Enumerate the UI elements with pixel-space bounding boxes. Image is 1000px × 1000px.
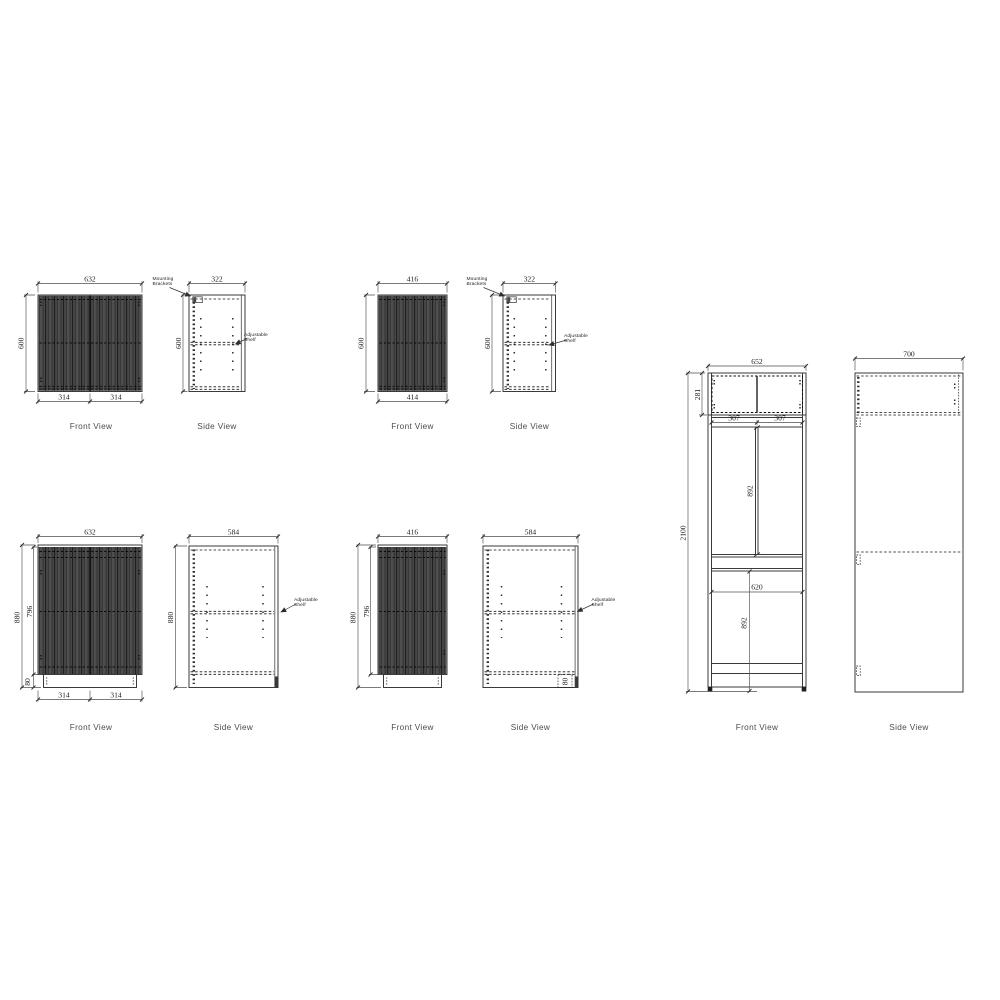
base-cabinet-416-side-view: 584 80	[481, 528, 594, 688]
dim-door-left: 314	[58, 393, 70, 402]
dim-width-top: 416	[407, 528, 419, 537]
dim-kick-height: 80	[23, 678, 32, 686]
dim-door-right: 314	[110, 393, 122, 402]
dim-door-left: 307	[728, 414, 740, 423]
wall-cabinet-632-side-view: 322 600	[170, 275, 248, 394]
dim-height-outer: 880	[349, 612, 358, 624]
dim-width-top: 632	[84, 275, 96, 284]
foot	[275, 677, 278, 688]
label-wall-416-front: Front View	[373, 422, 453, 431]
wall-cabinet-632-front-view: 632 600 314 314	[17, 275, 145, 404]
annotation-adjustable-shelf: Adjustable Shelf	[294, 598, 322, 609]
label-wall-632-front: Front View	[51, 422, 131, 431]
dim-upper-section: 892	[746, 485, 755, 497]
dim-lower-section: 892	[740, 617, 749, 629]
dim-height-left: 880	[166, 612, 175, 624]
dim-height-door: 796	[25, 606, 34, 618]
dim-door-right: 307	[774, 414, 786, 423]
dim-height-door: 796	[362, 606, 371, 618]
dim-depth-top: 322	[211, 275, 223, 284]
foot	[802, 687, 807, 692]
dim-width-top: 652	[751, 357, 763, 366]
dim-height-left: 600	[357, 337, 366, 349]
label-base-632-side: Side View	[194, 723, 274, 732]
annotation-adjustable-shelf: Adjustable Shelf	[592, 598, 620, 609]
dim-width-top: 416	[407, 275, 419, 284]
dim-door-right: 314	[110, 691, 122, 700]
base-cabinet-632-side-view: 584 880	[166, 528, 296, 690]
label-base-416-side: Side View	[491, 723, 571, 732]
kickboard	[384, 675, 442, 688]
dim-width-bottom: 414	[407, 393, 419, 402]
annotation-adjustable-shelf: Adjustable Shelf	[244, 333, 270, 344]
dim-height-outer: 880	[13, 612, 22, 624]
foot	[575, 677, 578, 688]
dim-depth-top: 584	[228, 528, 240, 537]
dim-height-left: 600	[483, 337, 492, 349]
dim-depth-top: 700	[903, 350, 915, 359]
dim-height-left: 2100	[679, 525, 688, 540]
label-wall-416-side: Side View	[490, 422, 570, 431]
label-base-416-front: Front View	[373, 723, 453, 732]
dim-depth-top: 322	[524, 275, 536, 284]
dim-width-top: 632	[84, 528, 96, 537]
dim-height-left: 600	[17, 337, 26, 349]
mounting-bracket-body	[507, 297, 510, 302]
tall-unit-front-view: 652 2100 281 307 307 892 620 892	[679, 357, 809, 694]
kickboard	[44, 675, 137, 688]
annotation-mounting-brackets: Mounting Brackets	[153, 277, 177, 288]
annotation-adjustable-shelf: Adjustable Shelf	[564, 334, 590, 345]
label-tall-side: Side View	[869, 723, 949, 732]
wall-cabinet-416-front-view: 416 600 414	[357, 275, 450, 404]
tall-unit-side-view: 700	[853, 350, 965, 693]
wall-cabinet-416-side-view: 322 600	[483, 275, 567, 394]
label-base-632-front: Front View	[51, 723, 131, 732]
annotation-mounting-brackets: Mounting Brackets	[467, 277, 491, 288]
cabinet-spec-sheet: 632 600 314 314 322 600 416	[0, 0, 1000, 1000]
mounting-bracket-body	[193, 297, 196, 302]
dim-kick-height: 80	[561, 678, 570, 686]
dim-top-section: 281	[693, 389, 702, 401]
foot	[708, 687, 713, 692]
fluted-door-panel	[379, 547, 447, 674]
technical-drawing-canvas: 632 600 314 314 322 600 416	[0, 0, 1000, 1000]
label-tall-front: Front View	[717, 723, 797, 732]
dim-door-left: 314	[58, 691, 70, 700]
dim-depth-top: 584	[525, 528, 537, 537]
label-wall-632-side: Side View	[177, 422, 257, 431]
mounting-brackets-arrow	[170, 288, 191, 297]
base-cabinet-632-front-view: 632 880 796 80 314 314	[13, 528, 145, 702]
dim-height-left: 600	[174, 337, 183, 349]
base-cabinet-416-front-view: 416 880 796	[349, 528, 450, 690]
dim-mid-width: 620	[751, 583, 763, 592]
